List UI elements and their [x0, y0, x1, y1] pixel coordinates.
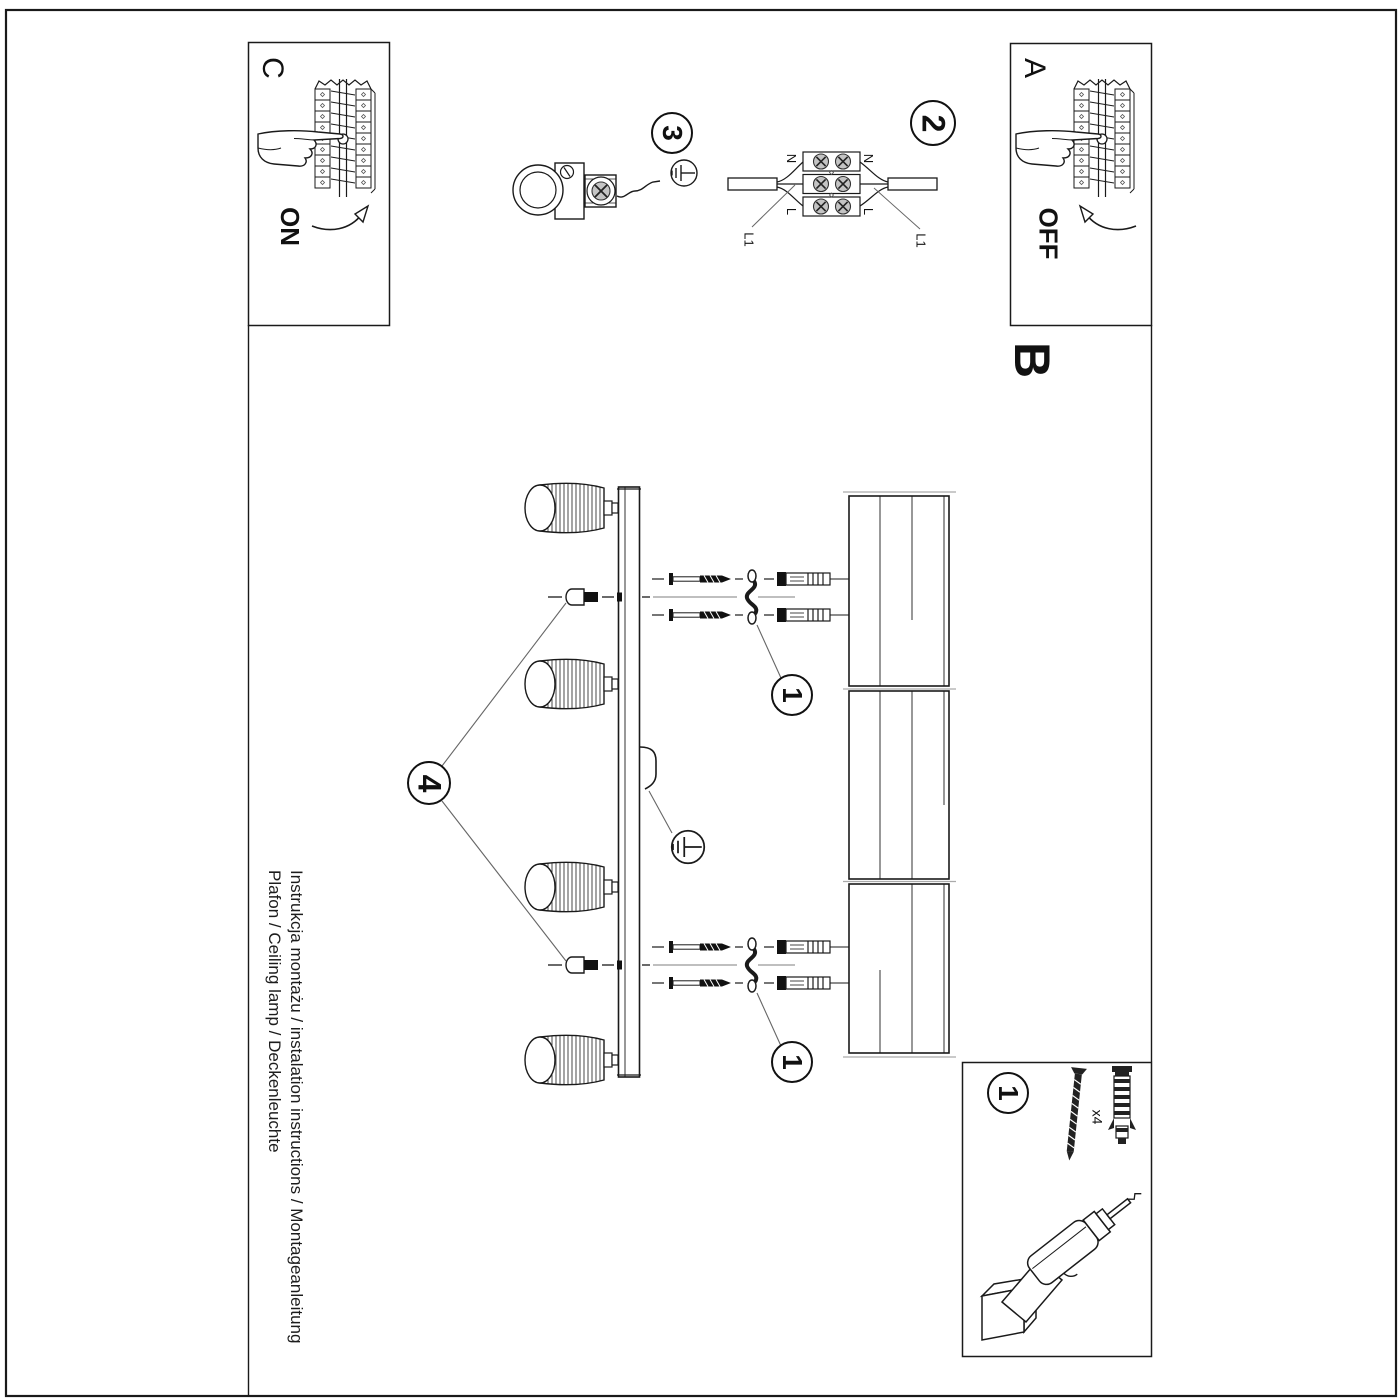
earth-hook	[640, 747, 656, 789]
switch-on-arrow-icon	[312, 206, 368, 230]
cable-left	[728, 178, 777, 190]
screw-icon	[1061, 1067, 1087, 1161]
callout-2: 2	[910, 100, 956, 146]
earth-symbol-icon	[671, 160, 697, 186]
spotlight-head	[525, 862, 618, 912]
page-border	[6, 10, 1396, 1396]
cable-right	[888, 178, 937, 190]
spotlight-head	[525, 483, 618, 533]
footer-product: Plafon / Ceiling lamp / Deckenleuchte	[266, 870, 283, 1153]
step-3-drawing	[513, 160, 697, 219]
step-a-box	[1011, 44, 1152, 326]
instruction-sheet: C ON A OFF B 3 2 4 1 1 1 N N L L L1 L1 x…	[0, 0, 1400, 1400]
earth-symbol-icon	[672, 831, 705, 864]
callout-1-upper: 1	[771, 674, 813, 716]
spotlight-head	[525, 659, 618, 709]
line-art-layer	[0, 0, 1400, 1400]
drill-icon	[982, 1179, 1156, 1340]
wall-plug-icon	[1108, 1066, 1136, 1144]
earth-wire	[617, 181, 660, 197]
spotlight-head	[525, 1035, 618, 1085]
callout-1-lower: 1	[771, 1041, 813, 1083]
fixing-set-lower	[548, 938, 892, 1046]
callout-4: 4	[407, 761, 451, 805]
switch-off-arrow-icon	[1080, 206, 1136, 230]
ceiling-panels	[843, 492, 956, 1057]
callout-3: 3	[651, 112, 693, 154]
step-2-drawing	[728, 152, 937, 229]
lamp-assembly-drawing	[442, 483, 892, 1085]
fixing-set-upper	[548, 570, 892, 678]
footer-title: Instrukcja montażu / instalation instruc…	[288, 870, 305, 1343]
callout-1-parts: 1	[987, 1072, 1029, 1114]
step-c-box	[249, 43, 390, 326]
